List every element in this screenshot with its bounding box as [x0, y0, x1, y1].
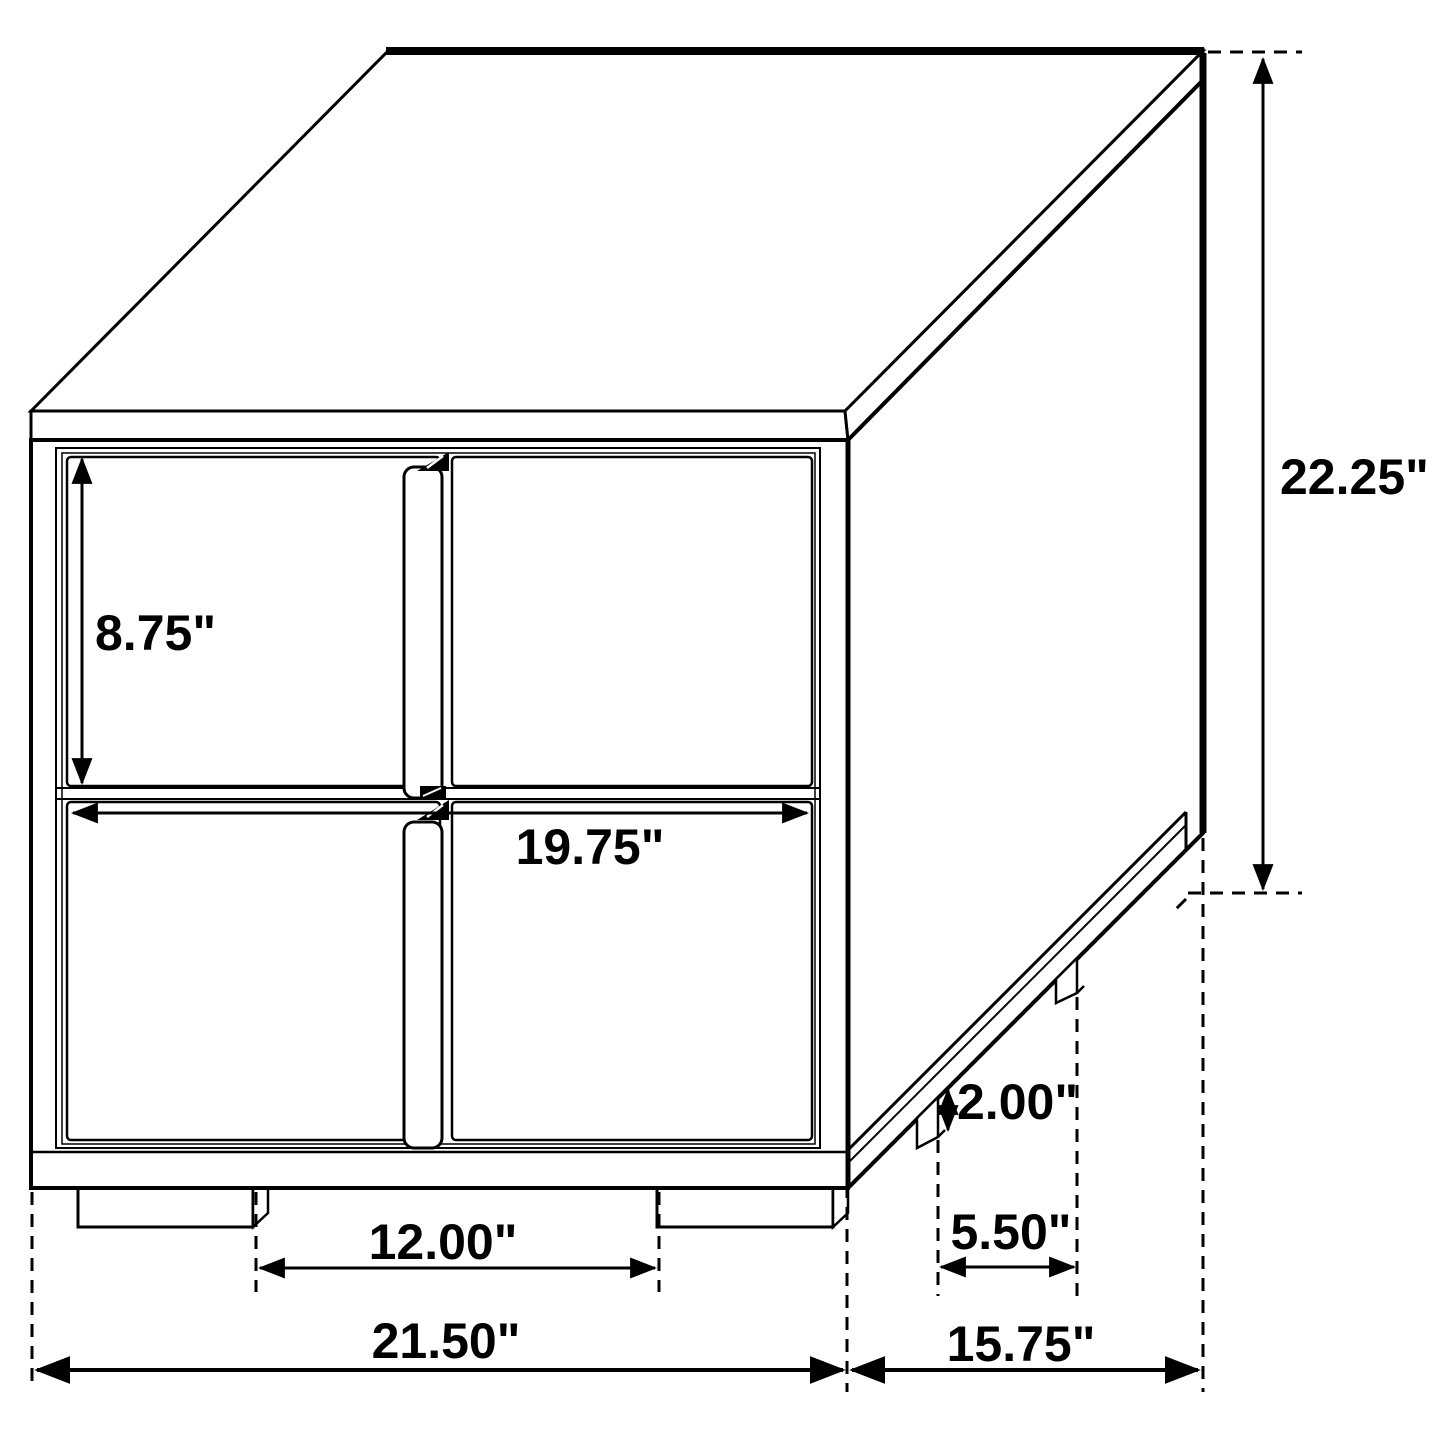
front-right-foot [657, 1188, 833, 1227]
ref-line-corner-tick [1176, 899, 1186, 909]
diagram-canvas: 8.75" 19.75" 22.25" 2.00" 5.50" 12.00" 2… [0, 0, 1445, 1445]
top-slab-front-band [31, 411, 848, 440]
dimension-diagram: 8.75" 19.75" 22.25" 2.00" 5.50" 12.00" 2… [0, 0, 1445, 1445]
drawer-face-bottom-left [67, 802, 440, 1140]
bottom-drawer-handle [404, 822, 442, 1148]
dim-label-drawer-width: 19.75" [516, 819, 665, 875]
top-drawer-handle [404, 467, 442, 798]
dim-label-overall-height: 22.25" [1280, 449, 1429, 505]
dim-label-overall-width: 21.50" [372, 1313, 521, 1369]
dim-label-overall-depth: 15.75" [947, 1316, 1096, 1372]
dim-label-side-foot-spacing: 5.50" [950, 1204, 1071, 1260]
dim-label-front-foot-spacing: 12.00" [369, 1214, 518, 1270]
drawer-face-top-right [452, 457, 812, 786]
front-left-foot [78, 1188, 253, 1227]
dim-label-foot-height: 2.00" [957, 1074, 1078, 1130]
dim-label-drawer-height: 8.75" [95, 605, 216, 661]
